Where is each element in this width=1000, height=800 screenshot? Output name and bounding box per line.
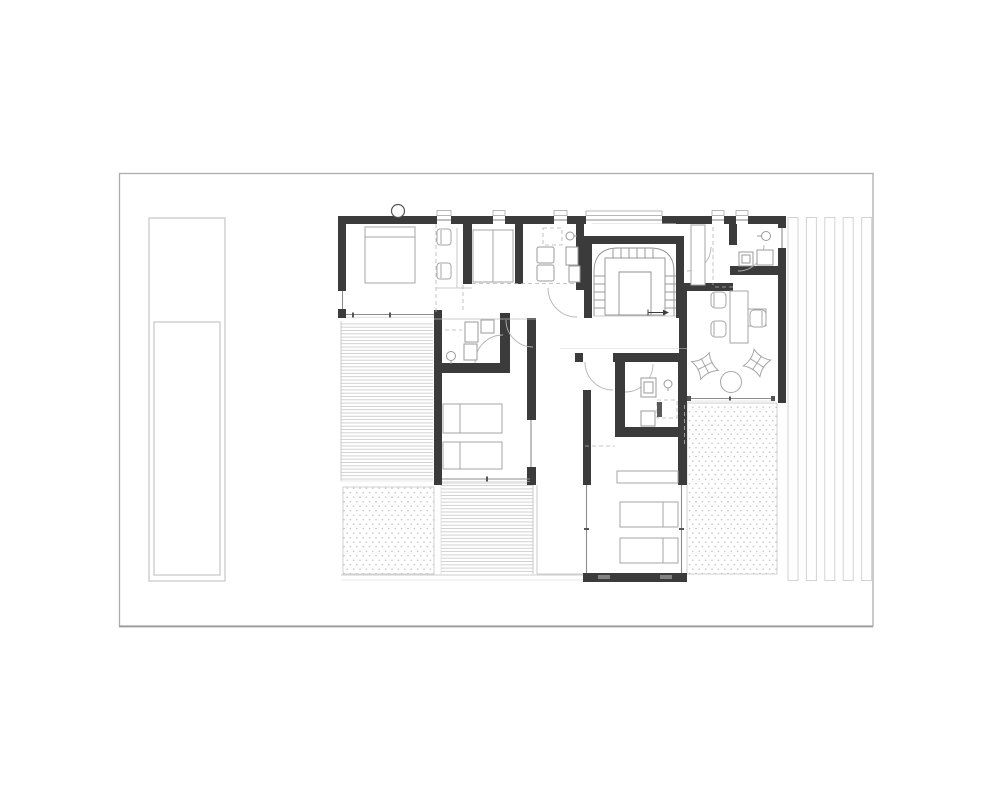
single-bed [620,538,678,563]
south-deck [441,483,533,574]
pool-outline [149,218,225,581]
toilet [739,252,753,266]
bathroom-northeast-fixtures [739,232,773,267]
cabinet [569,266,580,282]
roof-drain-icon [392,205,405,218]
covered-walkway [537,485,583,574]
bidet [641,411,655,426]
deck-party-wall [434,318,442,485]
window-frame [437,211,451,216]
single-bed [443,442,502,469]
lounge-chair [687,348,722,383]
east-wall-upper [778,224,786,228]
vanity [465,322,478,342]
vanity [566,247,578,265]
sink-icon [566,232,574,240]
office-furniture [687,291,773,393]
dressing-chair [437,229,451,245]
entry-nook-door-swing [585,362,613,390]
gravel-court-southwest [343,487,434,574]
lounge-chair [740,346,773,379]
double-bed [365,227,415,283]
louver-slat [843,218,853,581]
east-bedroom-wall [678,353,687,485]
sink [481,320,494,333]
sink-icon [664,380,672,388]
utility-bathroom-fixtures [537,228,580,282]
south-wall-window [660,575,672,579]
bedroom-south-furniture [617,471,678,563]
toilet-icon [447,352,456,361]
east-terrace [687,403,777,574]
west-wall-upper [338,224,346,291]
dressing-chair [437,263,451,279]
desk-chair [750,310,766,327]
bathroom-east-fixtures [641,378,677,426]
hall-wardrobe [691,225,705,285]
wardrobe-closet-furniture [473,230,513,282]
west-wall-cap [338,309,346,318]
bedroom-west-furniture [443,404,502,469]
lap-pool [149,218,225,581]
toilet [641,378,656,397]
single-bed [443,404,502,433]
floor-plan-page [0,0,1000,800]
desk-chair [711,292,726,308]
desk-chair [711,321,726,337]
stair-top-wall [584,236,684,244]
louver-slat [862,218,872,581]
appliance-dashed [543,228,562,245]
window-frame [554,211,567,216]
dresser [617,471,678,483]
desk [730,291,748,343]
shower-wall [657,402,662,417]
bathroom-center-fixtures [447,320,495,364]
window-frame [493,211,505,216]
bathroom-center-door-swing [475,335,503,363]
west-deck [341,321,433,481]
master-bedroom-furniture [365,227,451,283]
louver-slat [825,218,835,581]
pool-basin [154,322,220,575]
louver-slat [806,218,816,581]
coffee-table [721,372,742,393]
vanity [757,250,773,265]
single-bed [620,502,678,527]
east-wall [778,248,786,403]
window-frame [712,211,724,216]
window-frame [586,211,662,216]
floor-plan-drawing [0,0,1000,800]
stair-left-wall [584,244,592,318]
u-shaped-stair [594,248,676,316]
utility-door-swing [548,288,577,317]
stair-well [605,258,665,315]
washer [537,247,554,263]
louver-slat [788,218,798,581]
louver-screen [788,218,872,581]
toilet-tank [464,344,477,360]
south-wall-window [598,575,610,579]
dryer [537,265,554,281]
window-frame [736,211,748,216]
sink-icon [762,232,771,241]
